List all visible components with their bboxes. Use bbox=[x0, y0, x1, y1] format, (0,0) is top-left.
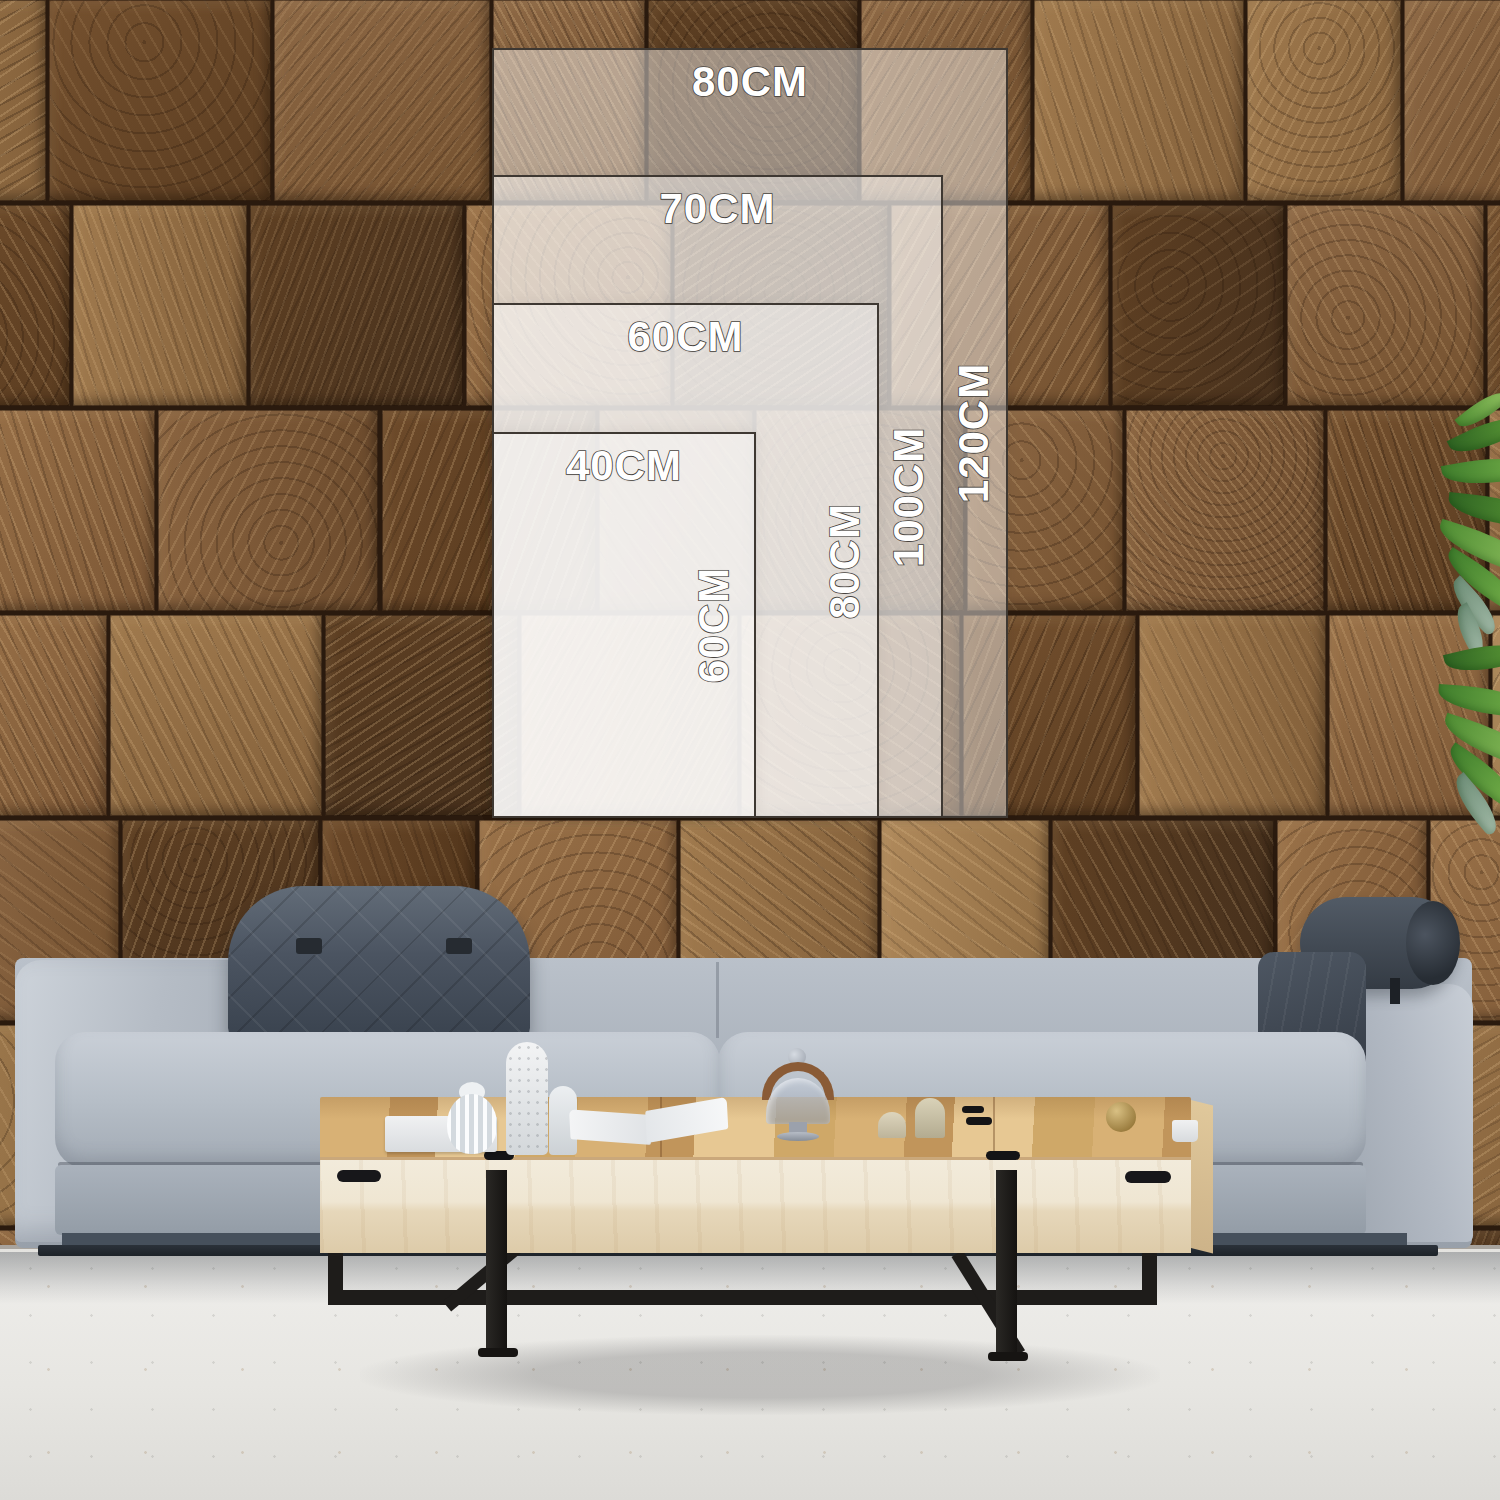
wall-art-size-mockup: 80CM 120CM 70CM 100CM 60CM 80CM 40CM 60C… bbox=[0, 0, 1500, 1500]
height-label-60cm: 60CM bbox=[693, 567, 735, 683]
height-label-120cm: 120CM bbox=[953, 363, 995, 503]
width-label-80cm: 80CM bbox=[692, 61, 808, 103]
height-label-100cm: 100CM bbox=[888, 426, 930, 566]
size-option-40x60cm: 40CM 60CM bbox=[492, 432, 756, 818]
height-label-80cm: 80CM bbox=[824, 502, 866, 618]
size-guide-overlay: 80CM 120CM 70CM 100CM 60CM 80CM 40CM 60C… bbox=[0, 0, 1500, 1500]
width-label-40cm: 40CM bbox=[566, 445, 682, 487]
width-label-60cm: 60CM bbox=[627, 316, 743, 358]
width-label-70cm: 70CM bbox=[659, 188, 775, 230]
